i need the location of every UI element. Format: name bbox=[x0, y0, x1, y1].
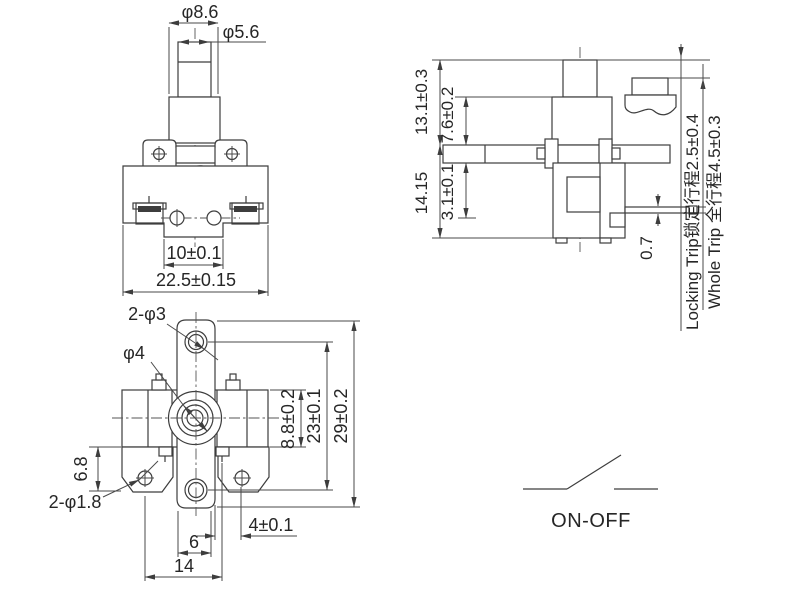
dim-4: 4±0.1 bbox=[249, 515, 294, 535]
dim-phi-8-6: φ8.6 bbox=[182, 2, 219, 22]
dim-phi-4: φ4 bbox=[123, 343, 145, 363]
dim-3-1: 3.1±0.1 bbox=[438, 164, 457, 221]
on-off-label: ON-OFF bbox=[551, 510, 631, 532]
dim-14-15: 14.15 bbox=[412, 172, 431, 215]
dim-13-1: 13.1±0.3 bbox=[412, 69, 431, 135]
dim-6-8: 6.8 bbox=[71, 456, 91, 481]
dim-7-6: 7.6±0.2 bbox=[438, 87, 457, 144]
side-view: 13.1±0.3 7.6±0.2 14.15 3.1±0.1 0.7 Locki… bbox=[412, 44, 724, 331]
dim-2-phi-1-8: 2-φ1.8 bbox=[49, 492, 102, 512]
dim-2-phi-3: 2-φ3 bbox=[128, 304, 166, 324]
dim-locking-trip: Locking Trip锁定行程2.5±0.4 bbox=[683, 114, 702, 330]
dim-22-5: 22.5±0.15 bbox=[156, 270, 236, 290]
switch-engineering-drawing: φ8.6 φ5.6 10±0.1 bbox=[0, 0, 788, 610]
dim-23: 23±0.1 bbox=[304, 389, 324, 444]
dim-whole-trip: Whole Trip 全行程4.5±0.3 bbox=[705, 115, 724, 309]
dim-8-8: 8.8±0.2 bbox=[278, 389, 298, 449]
dim-0-7: 0.7 bbox=[637, 236, 656, 260]
broken-section bbox=[625, 95, 676, 115]
technical-drawing-page: φ8.6 φ5.6 10±0.1 bbox=[0, 0, 788, 610]
dim-phi-5-6: φ5.6 bbox=[223, 22, 260, 42]
dim-14: 14 bbox=[174, 556, 194, 576]
dim-29: 29±0.2 bbox=[331, 389, 351, 444]
front-view: φ8.6 φ5.6 10±0.1 bbox=[123, 2, 268, 296]
on-off-symbol: ON-OFF bbox=[523, 455, 658, 532]
bottom-view: 2-φ3 φ4 6.8 2-φ1.8 8.8±0.2 23±0.1 29±0.2 bbox=[49, 304, 360, 581]
dim-6: 6 bbox=[189, 532, 199, 552]
dim-10: 10±0.1 bbox=[167, 243, 222, 263]
